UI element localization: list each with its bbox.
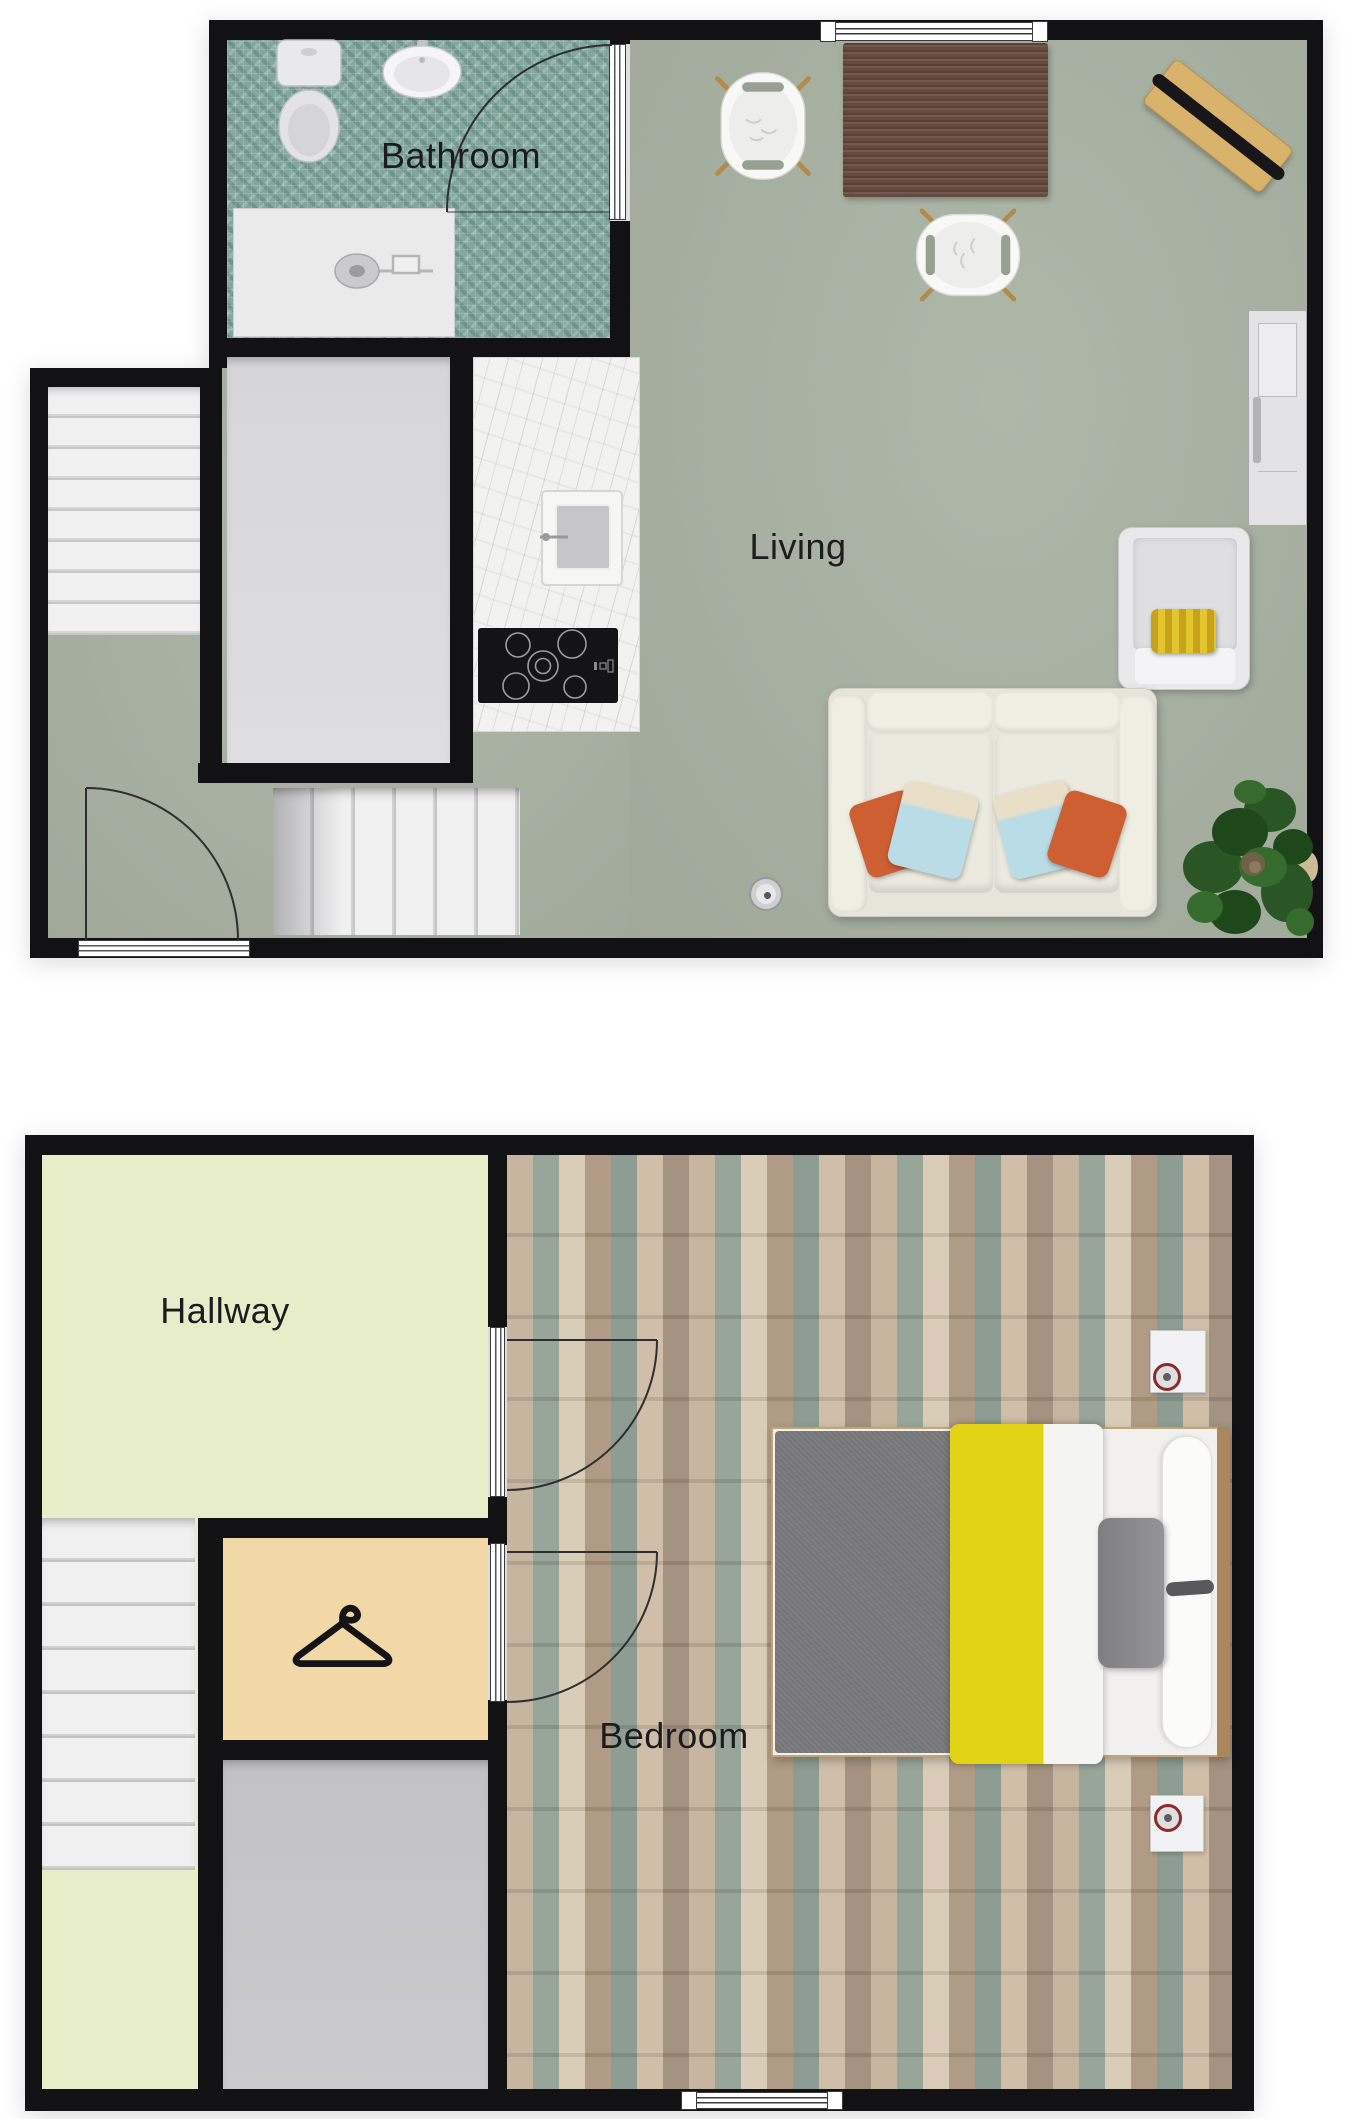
- wall: [198, 1518, 507, 1538]
- wardrobe-door: [490, 1543, 505, 1702]
- window-frame-cap: [681, 2091, 697, 2110]
- wall: [1232, 1135, 1254, 2111]
- red-ring-object-icon: [1153, 1363, 1181, 1391]
- storage-room-lower: [223, 1760, 488, 2089]
- hanger-icon: [285, 1585, 400, 1677]
- gray-blanket: [775, 1431, 956, 1753]
- wall: [25, 2089, 1254, 2111]
- wall: [488, 1155, 507, 1327]
- lower-floor-plan: Hallway Bedroom: [0, 0, 1349, 2119]
- yellow-duvet: [950, 1424, 1103, 1764]
- headboard: [1217, 1427, 1230, 1757]
- wall: [25, 1135, 42, 2111]
- hallway-floor: [42, 1155, 488, 1518]
- wall: [198, 1518, 223, 2089]
- room-label-hallway: Hallway: [160, 1290, 290, 1332]
- window: [695, 2092, 829, 2109]
- window-frame-cap: [827, 2091, 843, 2110]
- red-ring-object-icon: [1154, 1804, 1182, 1832]
- double-bed: [771, 1424, 1230, 1764]
- wall: [25, 1135, 1254, 1155]
- room-label-bedroom: Bedroom: [599, 1715, 749, 1757]
- hallway-door-swing-arc: [505, 1333, 661, 1495]
- floorplan-canvas: Bathroom Living: [0, 0, 1349, 2119]
- staircase-lower: [42, 1518, 195, 1870]
- hallway-door: [490, 1327, 505, 1497]
- wall: [488, 1760, 507, 2089]
- gray-pillow: [1098, 1518, 1164, 1668]
- wardrobe-door-swing-arc: [505, 1545, 661, 1707]
- wall: [198, 1740, 507, 1760]
- wall: [488, 1700, 507, 1760]
